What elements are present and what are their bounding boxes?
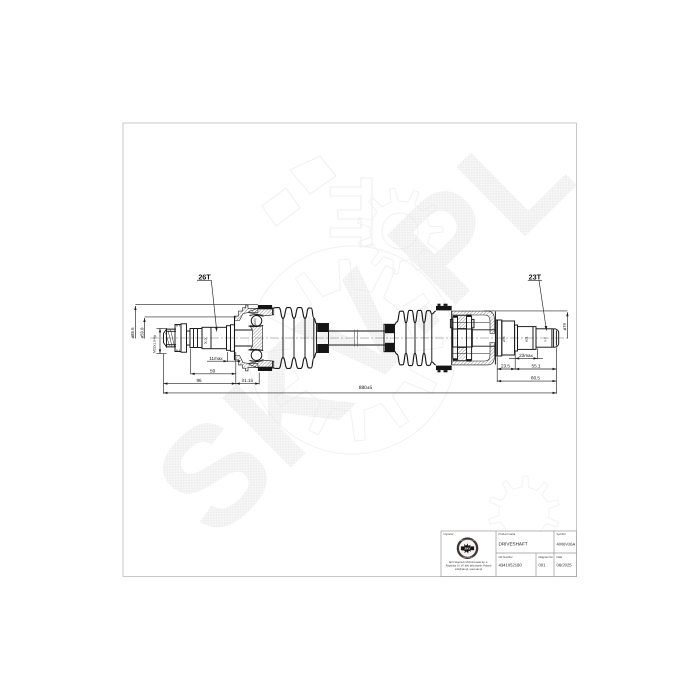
svg-text:4341052180: 4341052180 — [499, 562, 523, 567]
svg-text:Symbol: Symbol — [557, 533, 566, 536]
svg-text:31.15: 31.15 — [242, 378, 254, 383]
svg-text:55.1: 55.1 — [532, 364, 541, 369]
svg-text:ø59.8: ø59.8 — [139, 327, 144, 339]
svg-text:80.5: 80.5 — [531, 376, 540, 381]
svg-text:(ø90): (ø90) — [253, 318, 257, 326]
svg-text:SKV: SKV — [465, 547, 471, 551]
svg-text:880±5: 880±5 — [359, 385, 373, 391]
svg-text:info@skv.pl; www.skv.pl: info@skv.pl; www.skv.pl — [455, 568, 482, 571]
svg-text:M22x1.5-6g: M22x1.5-6g — [152, 335, 156, 353]
svg-text:23max: 23max — [519, 353, 533, 358]
svg-text:Y-Y: Y-Y — [544, 336, 548, 342]
svg-text:Product name: Product name — [499, 533, 516, 536]
svg-text:59: 59 — [210, 368, 216, 373]
svg-text:MOTORYZACJA: MOTORYZACJA — [460, 539, 476, 542]
svg-text:AUTO CZESCI: AUTO CZESCI — [461, 556, 475, 559]
svg-text:ø21: ø21 — [525, 336, 529, 342]
svg-text:OE Number: OE Number — [499, 556, 513, 559]
svg-text:96: 96 — [196, 378, 202, 383]
svg-text:4006V26A: 4006V26A — [557, 541, 576, 546]
svg-text:ø85.6: ø85.6 — [130, 327, 135, 339]
svg-text:11max: 11max — [209, 356, 223, 361]
svg-text:001: 001 — [539, 562, 547, 567]
svg-text:23.5: 23.5 — [501, 364, 510, 369]
svg-text:X-X: X-X — [203, 337, 208, 344]
svg-text:Diagram No: Diagram No — [539, 556, 554, 559]
svg-text:06/2025: 06/2025 — [557, 562, 573, 567]
svg-text:DRIVESHAFT: DRIVESHAFT — [499, 542, 528, 547]
svg-text:ø79: ø79 — [562, 322, 567, 330]
svg-text:Importer: Importer — [444, 533, 454, 536]
svg-text:Date: Date — [557, 556, 563, 559]
svg-text:ø34: ø34 — [502, 336, 506, 342]
